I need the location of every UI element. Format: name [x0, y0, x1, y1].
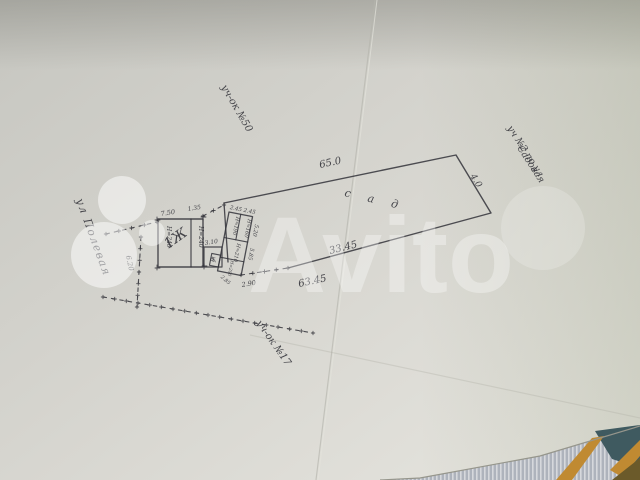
- house-height-left-label: H=240: [165, 225, 172, 248]
- watermark-logo-circle-1: [98, 176, 146, 224]
- watermark-logo-circle-2: [71, 222, 137, 288]
- plan-photo-svg: 1Ж H=240 H=240 7.50 1.35 3.10 в H=190 H=…: [0, 0, 640, 480]
- listing-photo-plot-plan: 1Ж H=240 H=240 7.50 1.35 3.10 в H=190 H=…: [0, 0, 640, 480]
- watermark-logo-circle-3: [139, 220, 165, 246]
- watermark-brand-text: Avito: [248, 194, 514, 315]
- house-height-right-label: H=240: [197, 225, 204, 248]
